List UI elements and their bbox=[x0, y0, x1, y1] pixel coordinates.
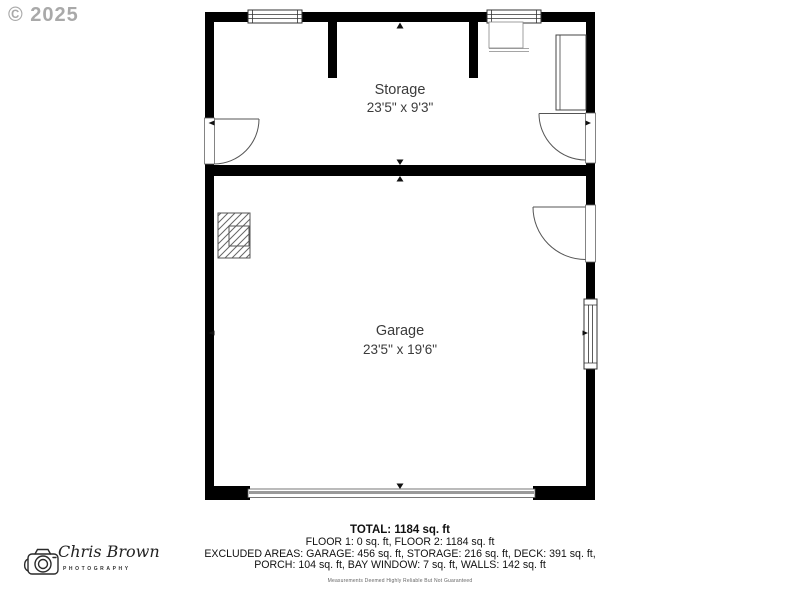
storage-room-label: Storage bbox=[215, 81, 585, 99]
logo-name: Chris Brown bbox=[58, 542, 160, 561]
shelf-fixture bbox=[489, 22, 529, 52]
camera-icon bbox=[22, 542, 62, 582]
garage-room-label: Garage bbox=[215, 322, 585, 340]
garage-door-bottom bbox=[248, 489, 535, 498]
storage-door-right bbox=[539, 113, 596, 163]
floor-plan-page: © 2025 bbox=[0, 0, 800, 600]
window-top-left bbox=[248, 10, 302, 23]
logo-subtitle: PHOTOGRAPHY bbox=[63, 566, 131, 572]
opening-arrow-markers bbox=[209, 121, 592, 336]
window-top-right bbox=[487, 10, 541, 23]
photographer-logo: Chris Brown PHOTOGRAPHY bbox=[22, 538, 192, 590]
garage-room-dimensions: 23'5" x 19'6" bbox=[215, 342, 585, 358]
storage-door-left bbox=[205, 118, 260, 164]
garage-window-right bbox=[584, 299, 597, 369]
garage-door-right bbox=[533, 205, 596, 262]
chimney-icon bbox=[218, 213, 250, 258]
storage-room-dimensions: 23'5" x 9'3" bbox=[215, 100, 585, 116]
